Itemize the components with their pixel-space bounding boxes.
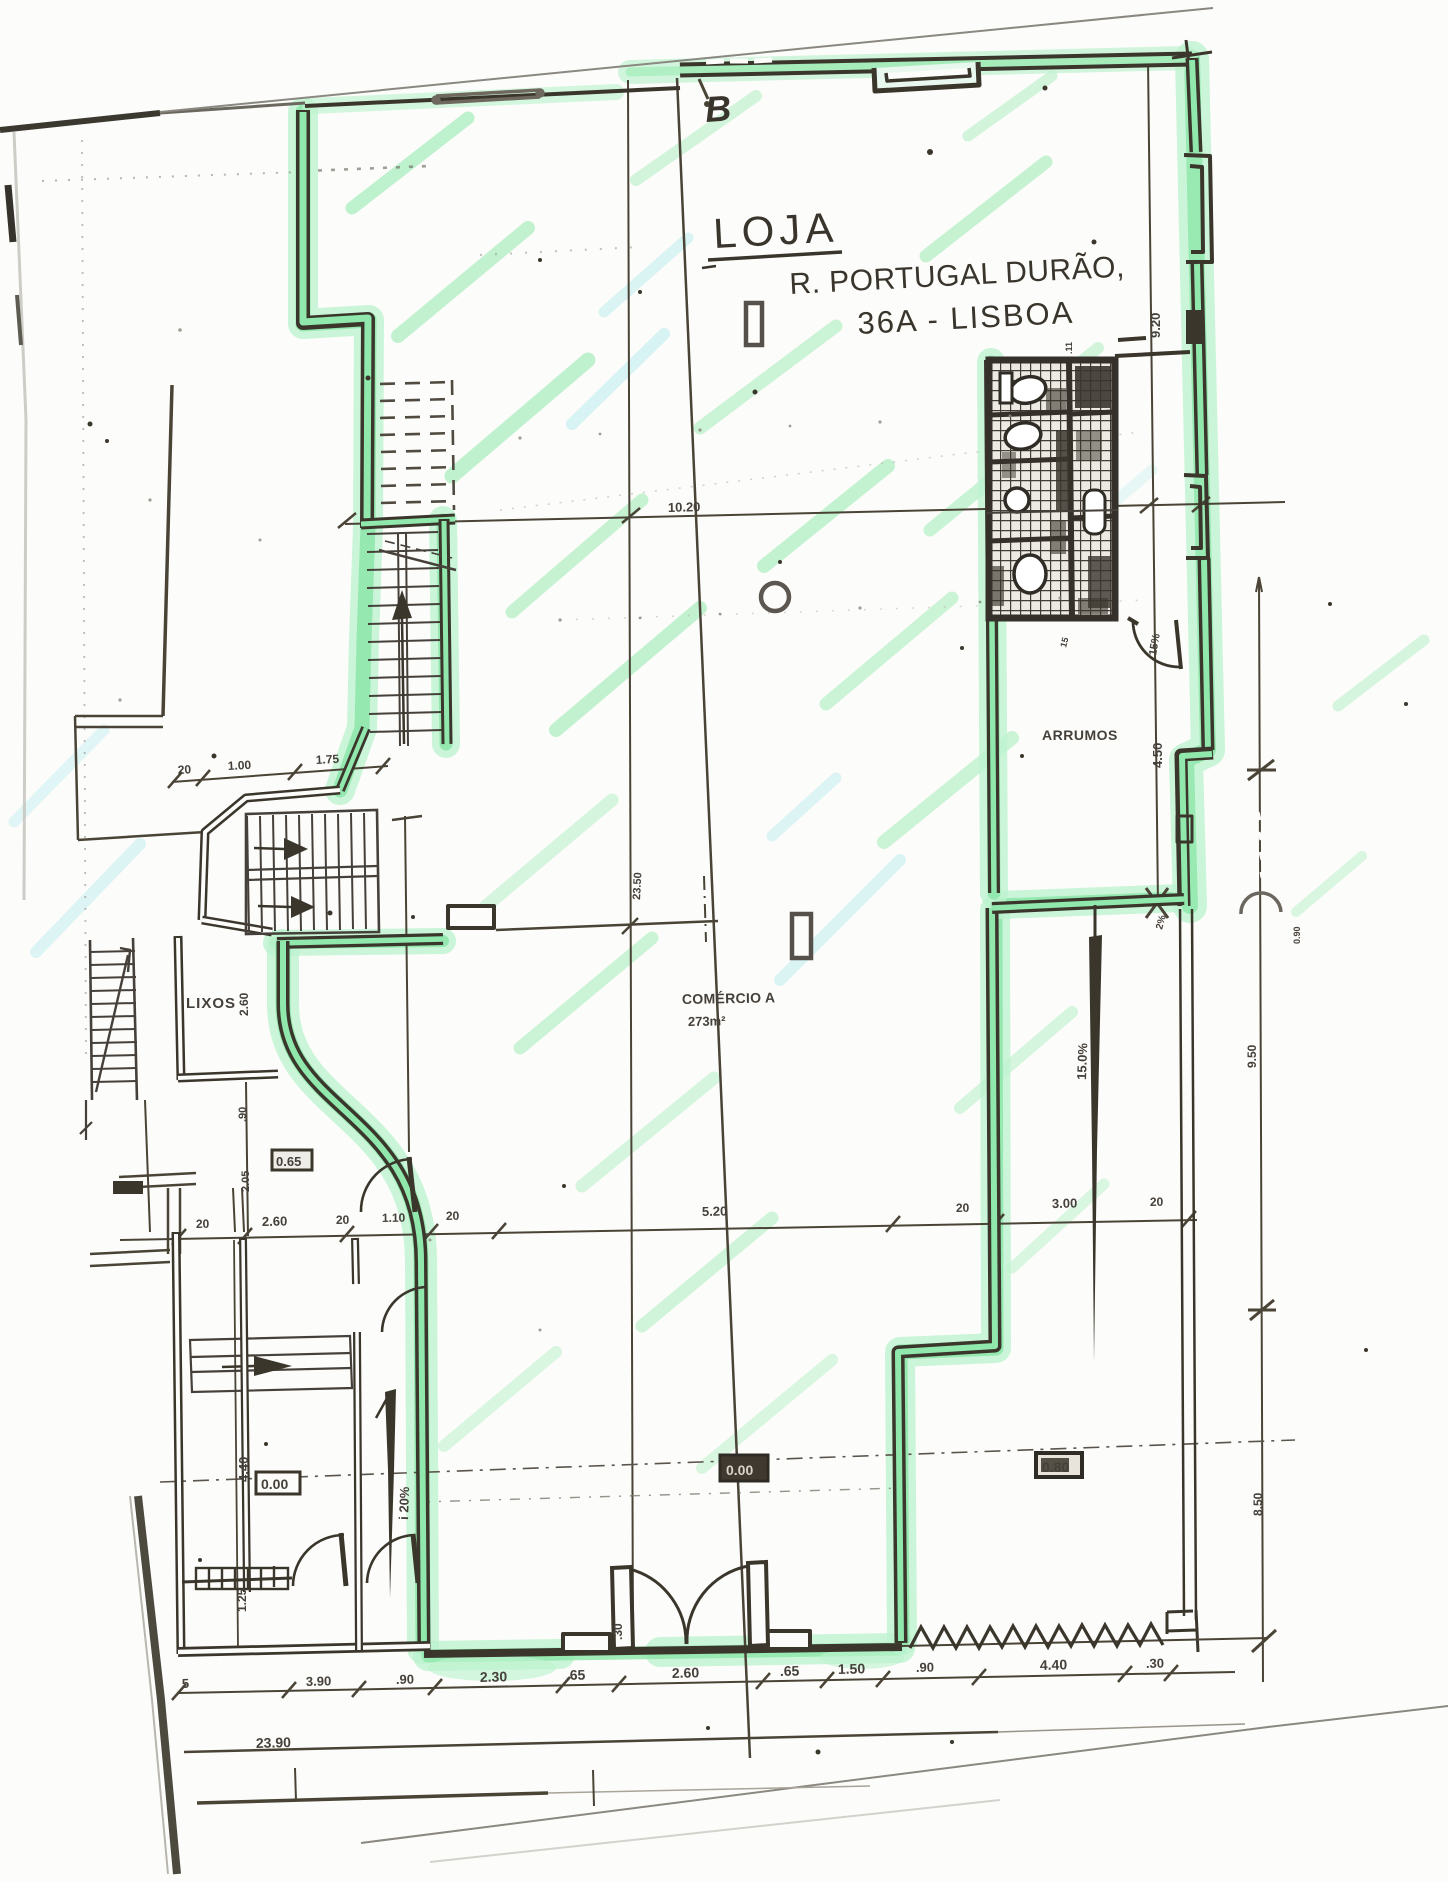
- svg-text:4.40: 4.40: [236, 1457, 251, 1482]
- svg-text:273m²: 273m²: [688, 1013, 727, 1029]
- svg-text:0.80: 0.80: [1042, 1459, 1069, 1475]
- svg-text:20: 20: [336, 1213, 350, 1227]
- svg-text:.11: .11: [1064, 342, 1074, 354]
- svg-text:20: 20: [446, 1209, 460, 1223]
- svg-text:10.20: 10.20: [668, 499, 701, 515]
- svg-text:LIXOS: LIXOS: [186, 995, 236, 1012]
- svg-text:23.50: 23.50: [631, 872, 644, 900]
- svg-text:2.60: 2.60: [237, 992, 251, 1016]
- svg-text:.90: .90: [396, 1672, 414, 1687]
- svg-text:15.0%: 15.0%: [1074, 1042, 1090, 1080]
- svg-text:.30: .30: [1146, 1656, 1164, 1671]
- svg-text:.90: .90: [916, 1660, 934, 1675]
- svg-text:.65: .65: [566, 1666, 586, 1683]
- svg-text:1.25: 1.25: [235, 1588, 249, 1612]
- svg-text:20: 20: [956, 1201, 970, 1215]
- svg-text:2.30: 2.30: [480, 1668, 508, 1685]
- svg-text:1.50: 1.50: [838, 1660, 866, 1677]
- svg-text:i 20%: i 20%: [396, 1486, 412, 1520]
- svg-text:8.50: 8.50: [1251, 1492, 1265, 1516]
- svg-text:0.00: 0.00: [726, 1462, 753, 1478]
- svg-text:9.50: 9.50: [1245, 1044, 1259, 1068]
- svg-text:2.05: 2.05: [240, 1171, 252, 1192]
- svg-text:20: 20: [196, 1217, 210, 1231]
- svg-text:COMÉRCIO A: COMÉRCIO A: [682, 989, 776, 1007]
- svg-text:5: 5: [182, 1676, 190, 1691]
- svg-text:.30: .30: [611, 1623, 625, 1640]
- svg-text:4.50: 4.50: [1150, 743, 1165, 768]
- svg-text:0.00: 0.00: [261, 1476, 288, 1492]
- svg-text:0.65: 0.65: [276, 1154, 301, 1169]
- svg-text:23.90: 23.90: [256, 1734, 292, 1751]
- svg-text:LOJA: LOJA: [712, 204, 839, 257]
- svg-text:3.90: 3.90: [306, 1673, 332, 1689]
- svg-text:.65: .65: [780, 1662, 800, 1679]
- svg-text:1.00: 1.00: [227, 758, 251, 773]
- svg-text:B: B: [704, 87, 733, 130]
- svg-text:1.10: 1.10: [382, 1211, 406, 1225]
- svg-text:20: 20: [1150, 1195, 1164, 1209]
- svg-text:2.60: 2.60: [262, 1214, 288, 1229]
- svg-text:0.90: 0.90: [1292, 926, 1302, 944]
- svg-text:.90: .90: [237, 1107, 249, 1122]
- svg-text:3.00: 3.00: [1052, 1196, 1078, 1211]
- svg-text:ARRUMOS: ARRUMOS: [1042, 727, 1118, 743]
- svg-text:5.20: 5.20: [702, 1204, 728, 1219]
- svg-text:1.75: 1.75: [315, 752, 339, 767]
- svg-text:20: 20: [177, 762, 191, 777]
- svg-text:2.60: 2.60: [672, 1664, 700, 1681]
- svg-text:4.40: 4.40: [1040, 1656, 1068, 1673]
- svg-text:9.20: 9.20: [1148, 313, 1163, 338]
